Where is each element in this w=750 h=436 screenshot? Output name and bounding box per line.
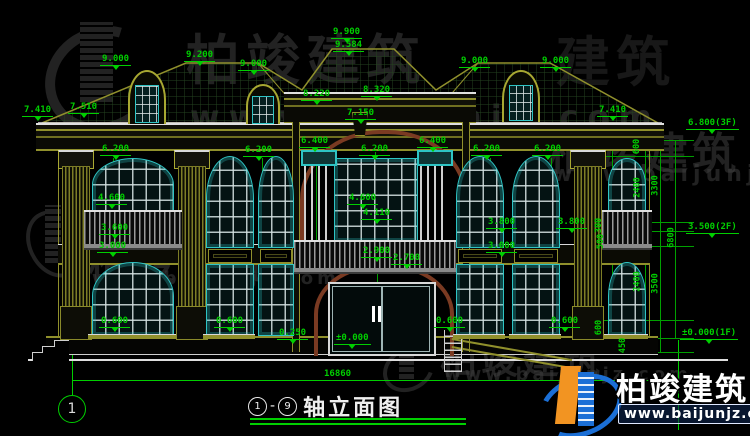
spandrel-panel (514, 249, 558, 263)
dim-label: 6.200 (471, 144, 502, 156)
dim-label: 9.000 (459, 56, 490, 68)
cad-elevation-drawing: 1 1 - 9 轴立面图 柏竣建筑 www.baijunjz.com 柏竣建筑w… (0, 0, 750, 436)
dim-label: 6800 (667, 225, 678, 249)
left-steps (42, 346, 55, 361)
dim-label: 3.500(2F) (686, 222, 739, 234)
dim-label: 3.800 (486, 217, 517, 229)
dim-label: 0.600 (434, 316, 465, 328)
dim-label: 500 (596, 232, 607, 251)
window-sill (88, 334, 176, 339)
dim-label: 2.700 (391, 253, 422, 265)
dim-label: ±0.000 (334, 333, 371, 345)
left-steps (32, 352, 43, 361)
spandrel-panel (208, 249, 252, 263)
dormer-sash (509, 85, 533, 121)
dim-label: 7.410 (597, 105, 628, 117)
dim-label: 600 (594, 318, 605, 337)
dim-label: 6.800(3F) (686, 118, 739, 130)
title-dash: - (270, 398, 275, 414)
dim-label: 3.000 (97, 241, 128, 253)
twin-columns (420, 162, 446, 242)
title-axis-circle-end: 9 (278, 397, 297, 416)
spandrel-panel (260, 249, 292, 263)
tall-window-upper (512, 156, 560, 248)
tall-window-lower (258, 264, 294, 336)
dim-label: 7.150 (345, 108, 376, 120)
door-leaf-right (382, 286, 430, 352)
dim-label: 2400 (633, 269, 644, 293)
dormer-sash (135, 85, 159, 123)
dim-label: 4.600 (347, 193, 378, 205)
axis-bubble-label: 1 (68, 401, 77, 417)
dim-label: 9.000 (540, 56, 571, 68)
window-sill (453, 334, 505, 339)
dim-label: 6.400 (299, 136, 330, 148)
dim-label: 6.200 (100, 144, 131, 156)
logo-brand-name: 柏竣建筑 (616, 364, 748, 409)
dim-label: 6.200 (243, 145, 274, 157)
door-handle (378, 306, 381, 322)
dormer-sash (252, 96, 274, 124)
tall-window-upper (206, 156, 254, 248)
site-logo: 柏竣建筑 www.baijunjz.com (536, 364, 750, 436)
dim-label: 6.400 (417, 136, 448, 148)
door-handle (372, 306, 375, 322)
dim-label: ±0.000(1F) (680, 328, 738, 340)
dim-label: 7.410 (22, 105, 53, 117)
dim-label: 9.584 (333, 40, 364, 52)
dim-label: 9.000 (100, 54, 131, 66)
dim-label: 450 (618, 336, 629, 355)
dim-label: 0.250 (277, 328, 308, 340)
logo-brand-url: www.baijunjz.com (618, 404, 750, 424)
ground-line (28, 359, 728, 361)
dormer-window (128, 70, 166, 124)
dim-label: 3.000 (486, 241, 517, 253)
dim-label: 3.600 (99, 223, 130, 235)
dim-label: 3500 (651, 271, 662, 295)
dormer-window (502, 70, 540, 122)
dim-label: 8.220 (301, 89, 332, 101)
title-underline (250, 418, 466, 420)
dim-label: 6.200 (532, 144, 563, 156)
dim-label: 9.000 (238, 59, 269, 71)
dim-label: 8.320 (361, 85, 392, 97)
dim-label: 4.110 (361, 208, 392, 220)
left-steps (54, 340, 69, 361)
dim-label: 7.510 (68, 102, 99, 114)
column-capital (301, 150, 337, 166)
window-sill (509, 334, 561, 339)
dim-label: 0.600 (549, 316, 580, 328)
dim-label: 9.900 (331, 27, 362, 39)
dim-label: 3300 (651, 173, 662, 197)
axis-bubble-1: 1 (58, 395, 86, 423)
dim-label: 6.200 (359, 144, 390, 156)
dim-label: 4.600 (96, 193, 127, 205)
dim-label: 3.800 (556, 217, 587, 229)
dim-label: 2.900 (361, 246, 392, 258)
window-upper (92, 158, 174, 216)
dim-label: 2400 (633, 175, 644, 199)
twin-columns (304, 162, 330, 242)
dim-label: 16860 (322, 369, 353, 380)
dim-label: 0.600 (214, 316, 245, 328)
dormer-window (246, 84, 280, 124)
title-underline (250, 423, 466, 425)
tall-window-upper (258, 156, 294, 248)
pilaster (178, 166, 206, 308)
balcony-railing (602, 210, 652, 248)
title-axis-circle-start: 1 (248, 397, 267, 416)
logo-building-blue (578, 372, 594, 426)
dim-label: 0.600 (99, 316, 130, 328)
dim-label: 600 (632, 137, 643, 156)
dim-label: 9.200 (184, 50, 215, 62)
